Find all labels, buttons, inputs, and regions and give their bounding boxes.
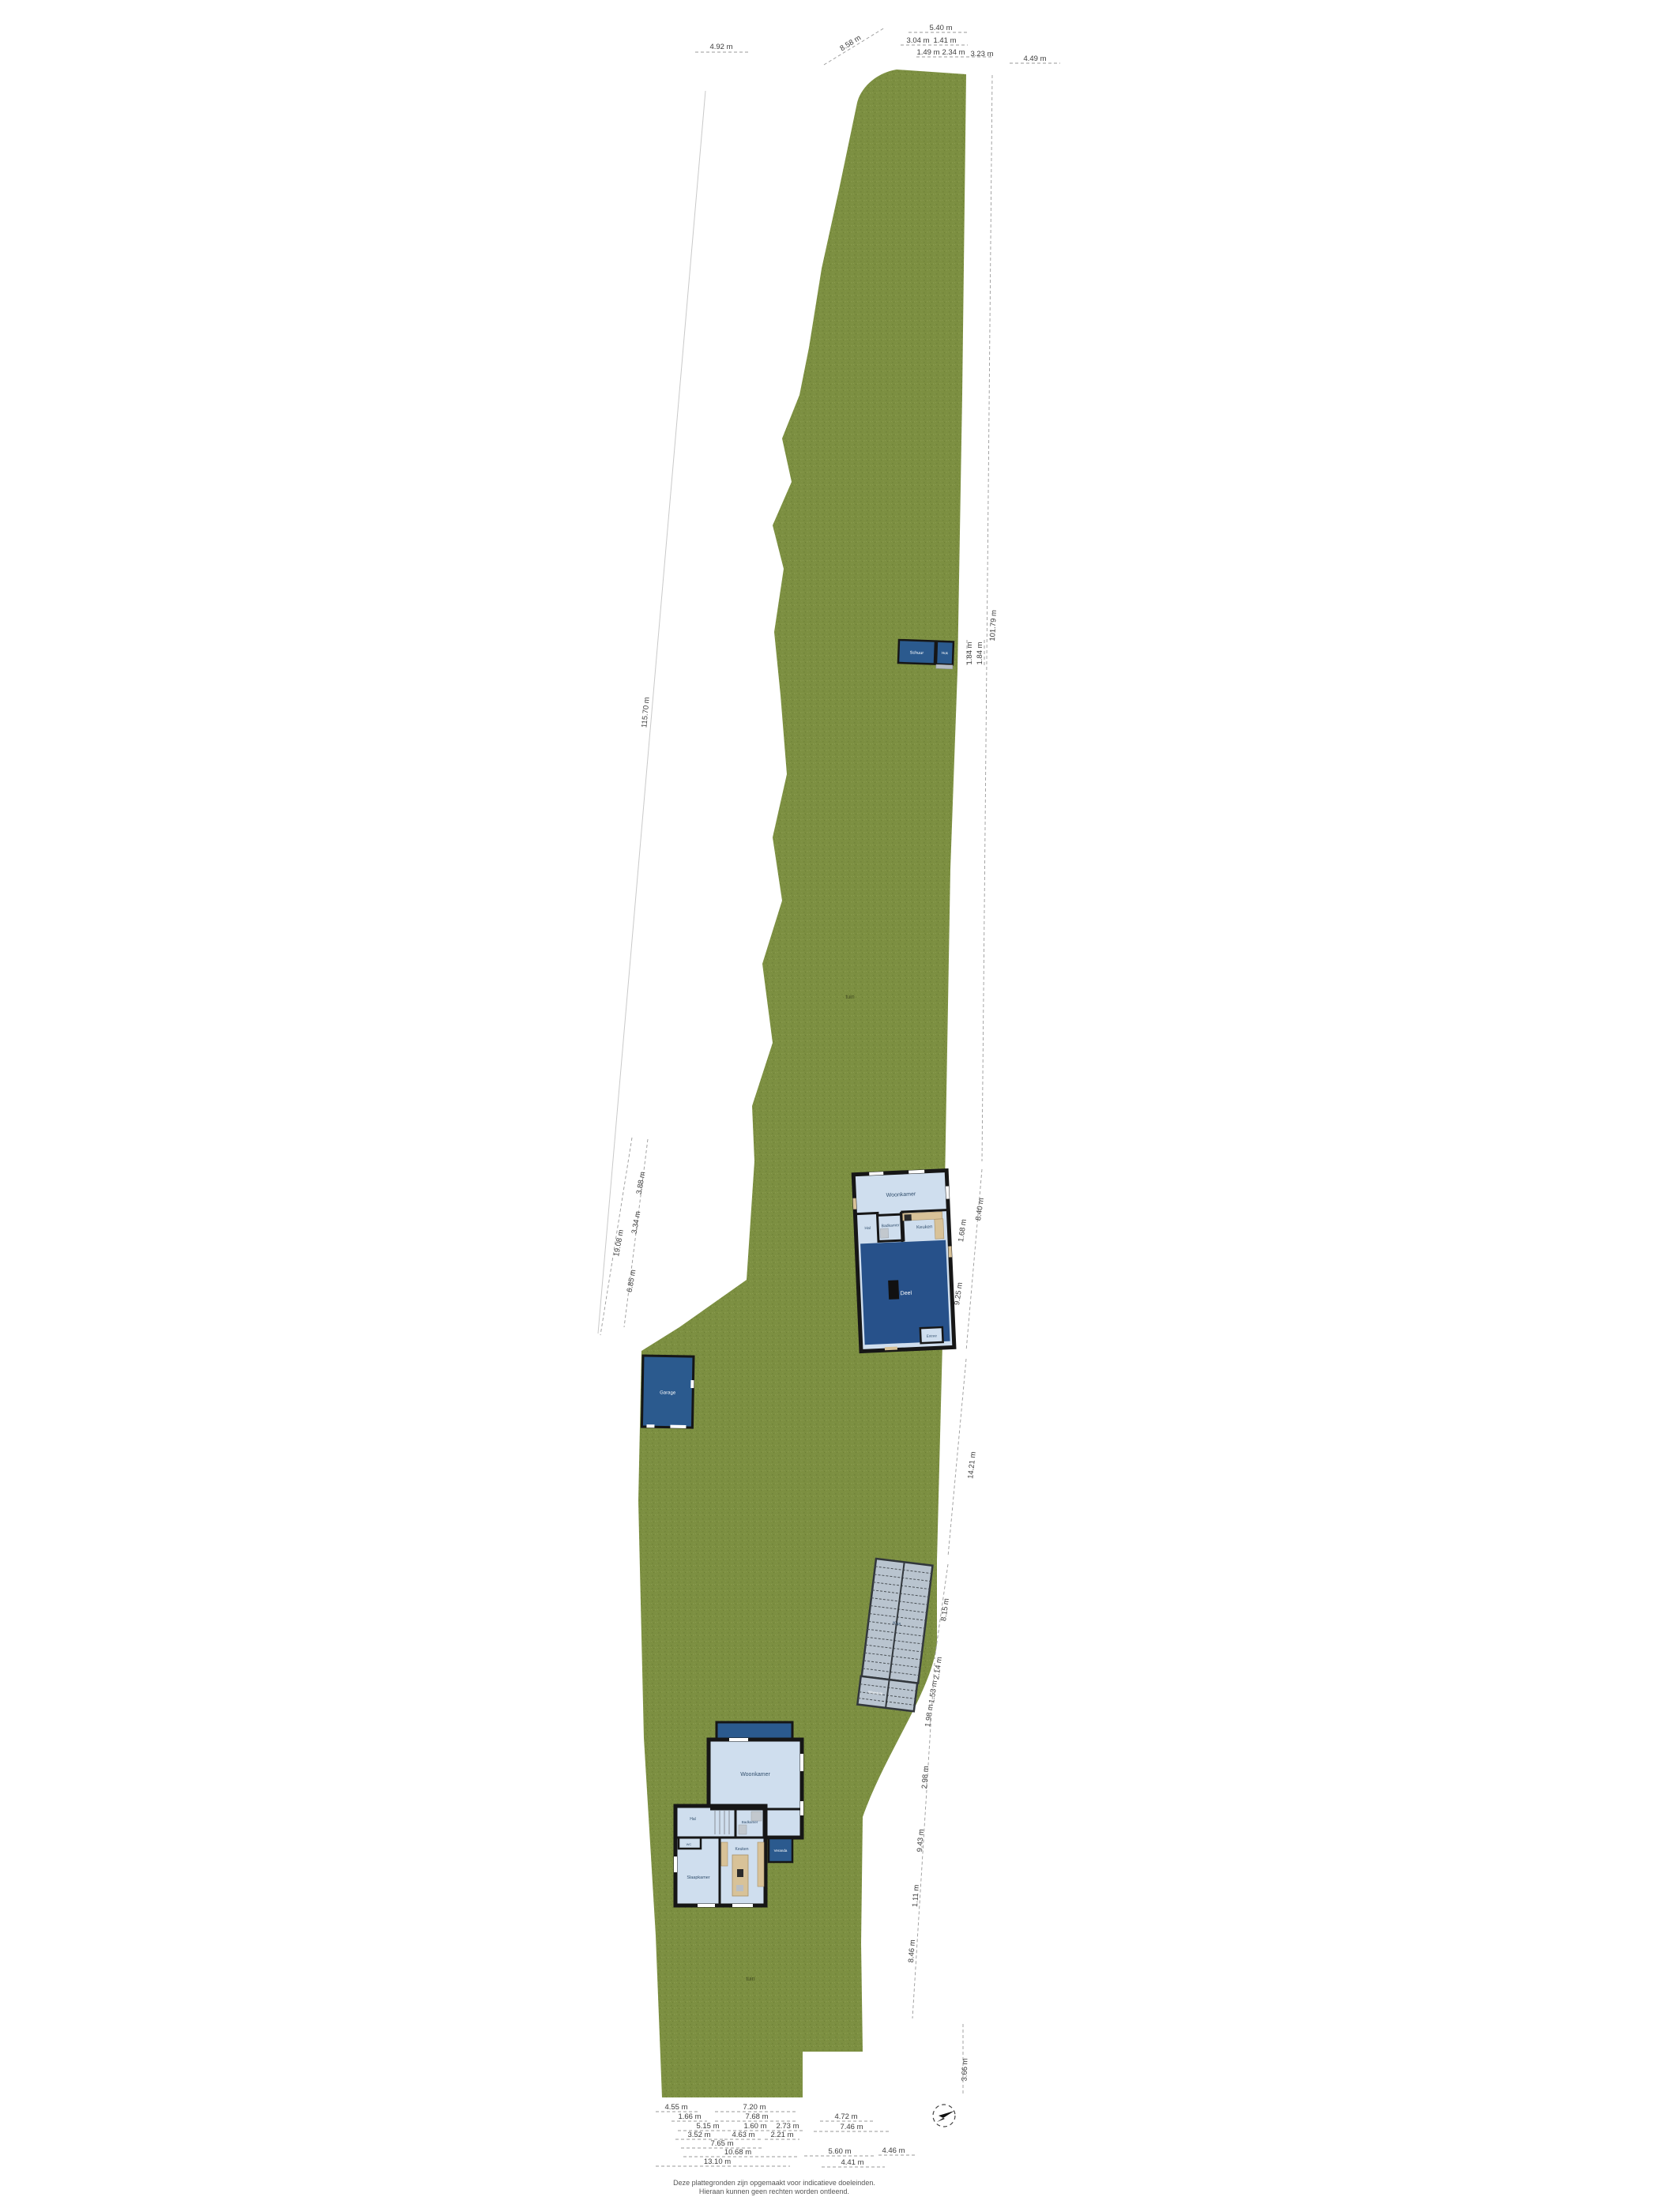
garage-door-mark xyxy=(670,1425,686,1428)
house1-window xyxy=(946,1186,950,1198)
dim-label: 1.53 m xyxy=(927,1680,939,1703)
boundary-line-right-lower xyxy=(966,1169,982,1351)
shed-gray-pad xyxy=(936,664,953,669)
dim-label: 115.70 m xyxy=(640,697,651,728)
dim-label: 1.11 m xyxy=(911,1884,921,1907)
house1-wall xyxy=(856,1213,878,1213)
ground-label-tuin-1: tuin xyxy=(845,995,854,1000)
dim-label: 1.84 m xyxy=(976,641,984,664)
dim-label: 9.25 m xyxy=(953,1281,965,1305)
dim-label: 1.98 m xyxy=(924,1703,935,1727)
garage-label: Garage xyxy=(660,1390,676,1395)
dim-label: 3.34 m xyxy=(630,1210,643,1235)
house1-window xyxy=(869,1172,883,1176)
house2-cabinet xyxy=(721,1842,728,1866)
dim-label: 2.21 m xyxy=(770,2131,793,2139)
dim-label: 3.52 m xyxy=(687,2131,710,2139)
dim-label: 1.84 m xyxy=(965,641,974,664)
dim-label: 4.46 m xyxy=(882,2146,905,2155)
house1-door xyxy=(885,1347,897,1351)
shed-right-label: Hok xyxy=(942,651,949,655)
house1-kitchen-counter-side xyxy=(935,1219,944,1239)
dim-label: 7.46 m xyxy=(840,2123,863,2131)
house1-kitchen-label: Keuken xyxy=(916,1224,933,1230)
site-plan-page: tuin tuin 4.92 m 8.58 m 5.40 m 3.04 m 1.… xyxy=(0,0,1659,2212)
house1-barn-label: Deel xyxy=(901,1291,912,1297)
dim-label: 8.15 m xyxy=(939,1597,951,1621)
dim-label: 5.60 m xyxy=(828,2147,851,2156)
house2-kitchen-label: Keuken xyxy=(735,1847,749,1852)
house2-bath-label: Badkamer xyxy=(742,1820,758,1824)
dim-line xyxy=(824,28,885,65)
dim-label: 10.68 m xyxy=(724,2148,751,2157)
dim-label: 6.85 m xyxy=(626,1269,638,1293)
house2-roof-section xyxy=(717,1722,792,1740)
house2-kitchen-appliance xyxy=(736,1885,743,1891)
house2-window xyxy=(729,1738,748,1741)
dim-label: 3.66 m xyxy=(960,2058,969,2081)
dim-label: 2.98 m xyxy=(920,1766,931,1789)
dim-label: 19.08 m xyxy=(612,1229,626,1258)
garage-door-mark xyxy=(646,1424,654,1428)
dim-label: 14.21 m xyxy=(966,1451,978,1479)
greenhouse-label: Kas xyxy=(893,1621,901,1627)
dim-label: 8.46 m xyxy=(907,1939,917,1963)
dim-label: 9.43 m xyxy=(916,1829,926,1853)
dim-line xyxy=(948,1359,966,1556)
dim-label: 4.72 m xyxy=(834,2112,857,2121)
dim-label: 4.92 m xyxy=(709,43,732,51)
dim-label: 101.79 m xyxy=(988,610,999,641)
house2-kitchen-counter xyxy=(758,1842,764,1887)
shed-left-label: Schuur xyxy=(910,650,924,656)
house2-bedroom-label: Slaapkamer xyxy=(687,1875,710,1880)
dim-label: 8.40 m xyxy=(974,1197,986,1221)
disclaimer-line-2: Hieraan kunnen geen rechten worden ontle… xyxy=(699,2188,849,2195)
dim-label: 7.20 m xyxy=(743,2103,766,2112)
dim-label: 5.40 m xyxy=(929,24,952,32)
house2-kitchen-sink xyxy=(737,1869,743,1877)
dim-label: 13.10 m xyxy=(704,2157,731,2166)
house2-window xyxy=(698,1904,715,1907)
house2-veranda-label: Veranda xyxy=(774,1849,788,1853)
dim-label: 3.88 m xyxy=(635,1171,648,1195)
house1-entry-label: Entree xyxy=(927,1334,938,1338)
house2-window xyxy=(732,1904,753,1907)
house1-door xyxy=(948,1246,952,1257)
house1-stove xyxy=(905,1214,912,1221)
dim-label: 1.66 m xyxy=(678,2112,701,2121)
dim-label: 1.41 m xyxy=(933,36,956,45)
dim-label: 3.04 m xyxy=(906,36,929,45)
dim-label: 4.49 m xyxy=(1023,55,1046,63)
compass xyxy=(933,2105,955,2127)
garage-window xyxy=(690,1380,694,1388)
dim-label: 1.49 m xyxy=(916,48,939,57)
dim-label: 4.63 m xyxy=(732,2131,754,2139)
site-plan-canvas: tuin tuin 4.92 m 8.58 m 5.40 m 3.04 m 1.… xyxy=(0,0,1659,2212)
house2-window xyxy=(674,1856,677,1872)
dim-label: 7.68 m xyxy=(745,2112,768,2121)
dim-label: 4.41 m xyxy=(841,2158,863,2167)
ground-label-tuin-2: tuin xyxy=(746,1977,754,1982)
house1-door xyxy=(853,1198,857,1209)
dim-label: 7.65 m xyxy=(710,2139,733,2148)
house2-hall-label: Hal xyxy=(690,1817,696,1822)
house2-living-label: Woonkamer xyxy=(740,1772,770,1777)
house2-window xyxy=(800,1754,803,1771)
disclaimer-line-1: Deze plattegronden zijn opgemaakt voor i… xyxy=(673,2179,875,2187)
house1-hall-label: Hal xyxy=(864,1226,871,1231)
house1-building: Woonkamer Keuken Badkamer Hal Deel Entre… xyxy=(852,1168,956,1351)
compass-north-arrow xyxy=(937,2111,954,2122)
dim-label: 1.60 m xyxy=(743,2122,766,2131)
dim-label: 3.23 m xyxy=(970,50,993,58)
house2-wc-label: WC xyxy=(687,1842,692,1846)
garage-building: Garage xyxy=(641,1356,694,1428)
dim-label: 4.55 m xyxy=(664,2103,687,2112)
house2-bath-fixture xyxy=(739,1825,747,1834)
dim-label: 2.34 m xyxy=(942,48,965,57)
house1-stairs xyxy=(888,1280,899,1300)
boundary-line-left xyxy=(598,91,705,1334)
dim-label: 1.68 m xyxy=(957,1218,969,1242)
house1-bath-label: Badkamer xyxy=(882,1223,900,1228)
house2-window xyxy=(800,1801,803,1815)
dim-label: 5.15 m xyxy=(696,2122,719,2131)
house1-bath-fixture xyxy=(880,1228,889,1238)
dim-label: 2.73 m xyxy=(776,2122,799,2131)
